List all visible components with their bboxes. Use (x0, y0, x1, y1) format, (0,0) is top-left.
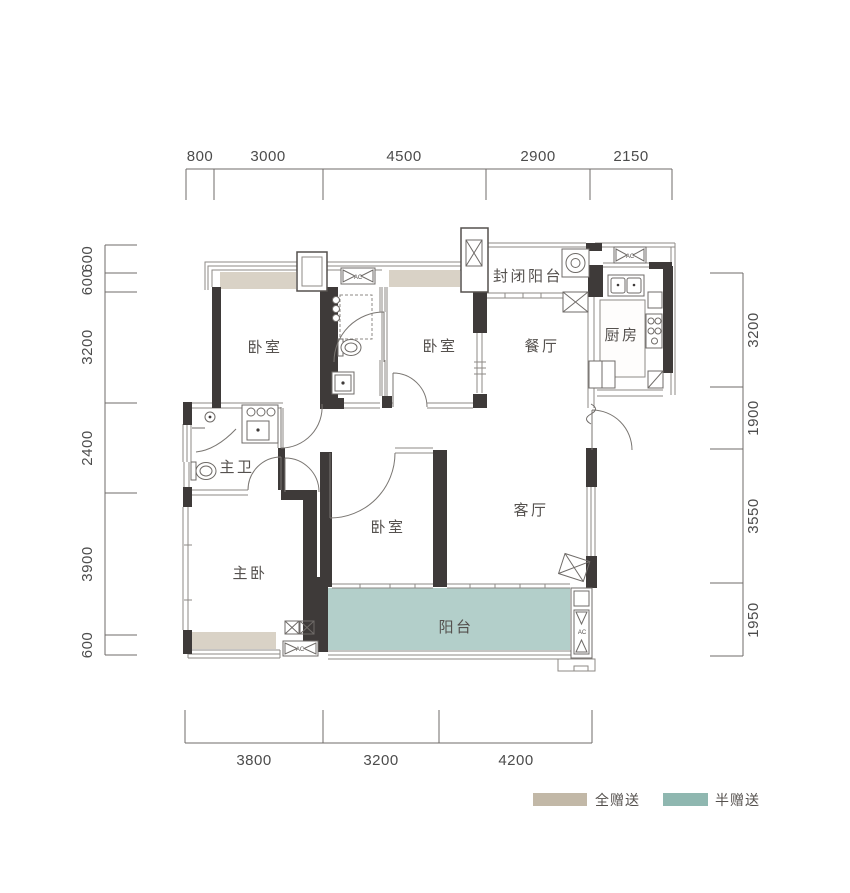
dim-label: 600 (79, 632, 96, 659)
wall (183, 487, 192, 507)
dimension-top: 800 3000 4500 2900 2150 (186, 148, 672, 200)
duct-box (461, 228, 488, 292)
stove-icon (646, 314, 662, 348)
shower-icon (192, 412, 236, 452)
dim-label: 2900 (520, 148, 555, 165)
room-label-bedroom1: 卧室 (247, 339, 282, 356)
room-label-dining: 餐厅 (524, 338, 559, 355)
dimension-bottom: 3800 3200 4200 (185, 710, 592, 769)
dim-label: 2400 (79, 430, 96, 465)
hook-icon (333, 306, 340, 313)
wall (473, 287, 487, 333)
dim-label: 800 (187, 148, 214, 165)
door-master-bedroom (285, 458, 319, 492)
ac-unit-icon: AC (341, 268, 375, 284)
wall (473, 394, 487, 408)
ac-label: AC (578, 630, 587, 636)
legend-label-half-gift: 半赠送 (715, 792, 760, 808)
door-bedroom2 (393, 373, 427, 407)
hook-icon (333, 297, 340, 304)
ac-unit-icon: AC (283, 641, 318, 656)
vent-x-box (285, 621, 299, 634)
full-gift-strip-bedroom2 (389, 270, 460, 287)
room-label-master-bath: 主卫 (219, 459, 254, 476)
room-label-living: 客厅 (513, 502, 548, 519)
dim-label: 1950 (745, 602, 762, 637)
cabinet-icon (648, 292, 662, 308)
legend-label-full-gift: 全赠送 (595, 792, 640, 808)
fridge-icon (589, 361, 602, 388)
wall (320, 398, 344, 409)
wall (212, 287, 221, 408)
kitchen-sink-icon (608, 275, 644, 296)
ac-label: AC (296, 647, 305, 653)
legend: 全赠送 半赠送 (533, 792, 760, 808)
washing-machine-icon (562, 249, 589, 277)
hook-icon (333, 315, 340, 322)
dim-label: 3200 (363, 752, 398, 769)
dim-label: 600 (79, 269, 96, 296)
dim-label: 3200 (745, 312, 762, 347)
toilet-icon (338, 339, 361, 356)
vanity-icon (242, 405, 278, 443)
floor-plan-canvas: AC AC AC AC (0, 0, 850, 893)
dim-label: 1900 (745, 400, 762, 435)
ac-unit-icon: AC (614, 247, 646, 263)
door-bedroom3 (330, 453, 395, 518)
wall (663, 266, 673, 373)
legend-swatch-half-gift (663, 793, 708, 806)
floor-plan-page: AC AC AC AC (0, 0, 850, 893)
ac-label: AC (626, 254, 635, 260)
full-gift-strip-bedroom1 (220, 272, 296, 289)
room-label-enclosed-balcony: 封闭阳台 (493, 268, 563, 285)
dimension-left: 600 600 3200 2400 3900 600 (79, 245, 137, 658)
dim-label: 3550 (745, 498, 762, 533)
dimension-right: 3200 1900 3550 1950 (710, 273, 762, 656)
room-label-bedroom3: 卧室 (370, 519, 405, 536)
wall (281, 490, 317, 500)
door-bedroom1 (281, 404, 322, 448)
cabinet-icon (602, 361, 615, 388)
room-label-bedroom2: 卧室 (422, 338, 457, 355)
wall (586, 448, 597, 487)
bay-x-box-tilted (559, 554, 590, 582)
dim-label: 3200 (79, 329, 96, 364)
wall (588, 265, 603, 297)
wall (433, 450, 447, 587)
bay-x-box (563, 292, 588, 312)
dim-label: 600 (79, 246, 96, 273)
dim-label: 4500 (386, 148, 421, 165)
dim-label: 3900 (79, 546, 96, 581)
shower-area (340, 295, 372, 339)
room-label-kitchen: 厨房 (604, 327, 639, 344)
door-entry (592, 410, 632, 450)
ac-unit-icon-vertical: AC (571, 588, 592, 658)
dim-label: 4200 (498, 752, 533, 769)
room-label-master-bedroom: 主卧 (232, 565, 267, 582)
room-label-balcony: 阳台 (438, 619, 473, 636)
wall (183, 402, 192, 425)
wall (382, 396, 392, 408)
legend-swatch-full-gift (533, 793, 587, 806)
dim-label: 2150 (613, 148, 648, 165)
dim-label: 3000 (250, 148, 285, 165)
full-gift-strip-master (192, 632, 276, 649)
dim-label: 3800 (236, 752, 271, 769)
sink-icon (332, 372, 354, 394)
corner-cabinet-icon (648, 371, 663, 388)
wall (183, 630, 192, 654)
ac-label: AC (354, 275, 363, 281)
toilet-icon (191, 462, 216, 480)
